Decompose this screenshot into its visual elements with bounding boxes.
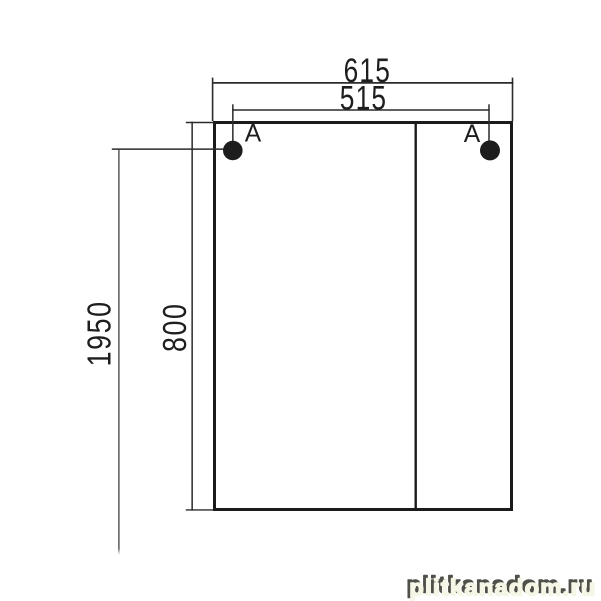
svg-text:A: A <box>245 120 262 147</box>
svg-text:plitkanadom.ru: plitkanadom.ru <box>409 574 596 600</box>
svg-text:A: A <box>464 121 481 148</box>
svg-text:800: 800 <box>157 302 193 352</box>
svg-text:515: 515 <box>340 79 387 117</box>
svg-text:1950: 1950 <box>82 300 118 366</box>
